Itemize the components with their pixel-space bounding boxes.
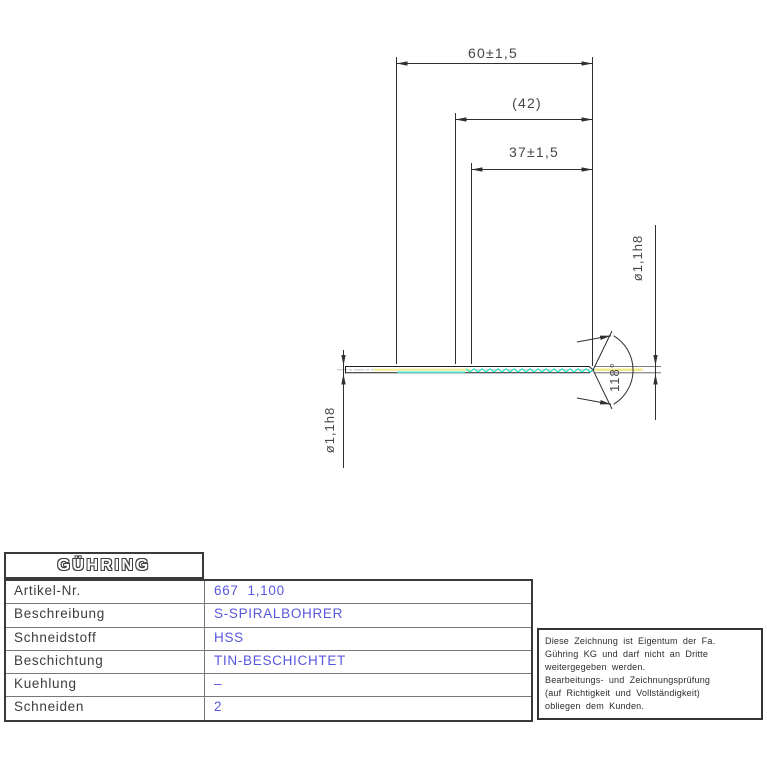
row-value: 2 xyxy=(205,697,531,719)
technical-drawing-page: 60±1,5 (42) 37±1,5 ø xyxy=(0,0,767,767)
disclaimer-line: weitergegeben werden. xyxy=(545,661,758,674)
table-row: Beschichtung TIN-BESCHICHTET xyxy=(6,650,531,673)
point-angle-label: 118° xyxy=(607,362,622,392)
drill-drawing: 60±1,5 (42) 37±1,5 ø xyxy=(0,0,767,552)
reference-length-label: (42) xyxy=(512,95,542,111)
row-value: S-SPIRALBOHRER xyxy=(205,604,531,626)
table-row: Schneidstoff HSS xyxy=(6,627,531,650)
drill-body xyxy=(337,366,601,373)
dimension-reference-length: (42) xyxy=(456,95,593,120)
row-label: Beschreibung xyxy=(6,604,205,626)
disclaimer-line: (auf Richtigkeit und Vollständigkeit) xyxy=(545,687,758,700)
disclaimer-box: Diese Zeichnung ist Eigentum der Fa. Güh… xyxy=(537,628,763,720)
brand-logo: GÜHRING xyxy=(57,557,150,575)
row-value: HSS xyxy=(205,628,531,650)
diameter-right-label: ø1,1h8 xyxy=(630,235,645,281)
table-row: Artikel-Nr. 667 1,100 xyxy=(6,581,531,603)
extension-lines xyxy=(397,57,593,366)
disclaimer-line: Gühring KG und darf nicht an Dritte xyxy=(545,648,758,661)
row-label: Schneidstoff xyxy=(6,628,205,650)
disclaimer-line: obliegen dem Kunden. xyxy=(545,700,758,713)
row-label: Artikel-Nr. xyxy=(6,581,205,603)
brand-cell: GÜHRING xyxy=(4,552,204,579)
disclaimer-line: Diese Zeichnung ist Eigentum der Fa. xyxy=(545,635,758,648)
table-row: Kuehlung – xyxy=(6,673,531,696)
diameter-left-label: ø1,1h8 xyxy=(322,407,337,453)
overall-length-label: 60±1,5 xyxy=(468,45,518,61)
row-value: 667 1,100 xyxy=(205,581,531,603)
row-label: Kuehlung xyxy=(6,674,205,696)
flute-length-label: 37±1,5 xyxy=(509,144,559,160)
spec-rows: Artikel-Nr. 667 1,100 Beschreibung S-SPI… xyxy=(4,579,533,722)
row-value: – xyxy=(205,674,531,696)
disclaimer-line: Bearbeitungs- und Zeichnungsprüfung xyxy=(545,674,758,687)
dimension-diameter-left: ø1,1h8 xyxy=(322,350,344,468)
row-value: TIN-BESCHICHTET xyxy=(205,651,531,673)
dimension-flute-length: 37±1,5 xyxy=(472,144,593,170)
table-row: Schneiden 2 xyxy=(6,696,531,719)
table-row: Beschreibung S-SPIRALBOHRER xyxy=(6,603,531,626)
row-label: Schneiden xyxy=(6,697,205,719)
dimension-overall-length: 60±1,5 xyxy=(397,45,593,64)
row-label: Beschichtung xyxy=(6,651,205,673)
